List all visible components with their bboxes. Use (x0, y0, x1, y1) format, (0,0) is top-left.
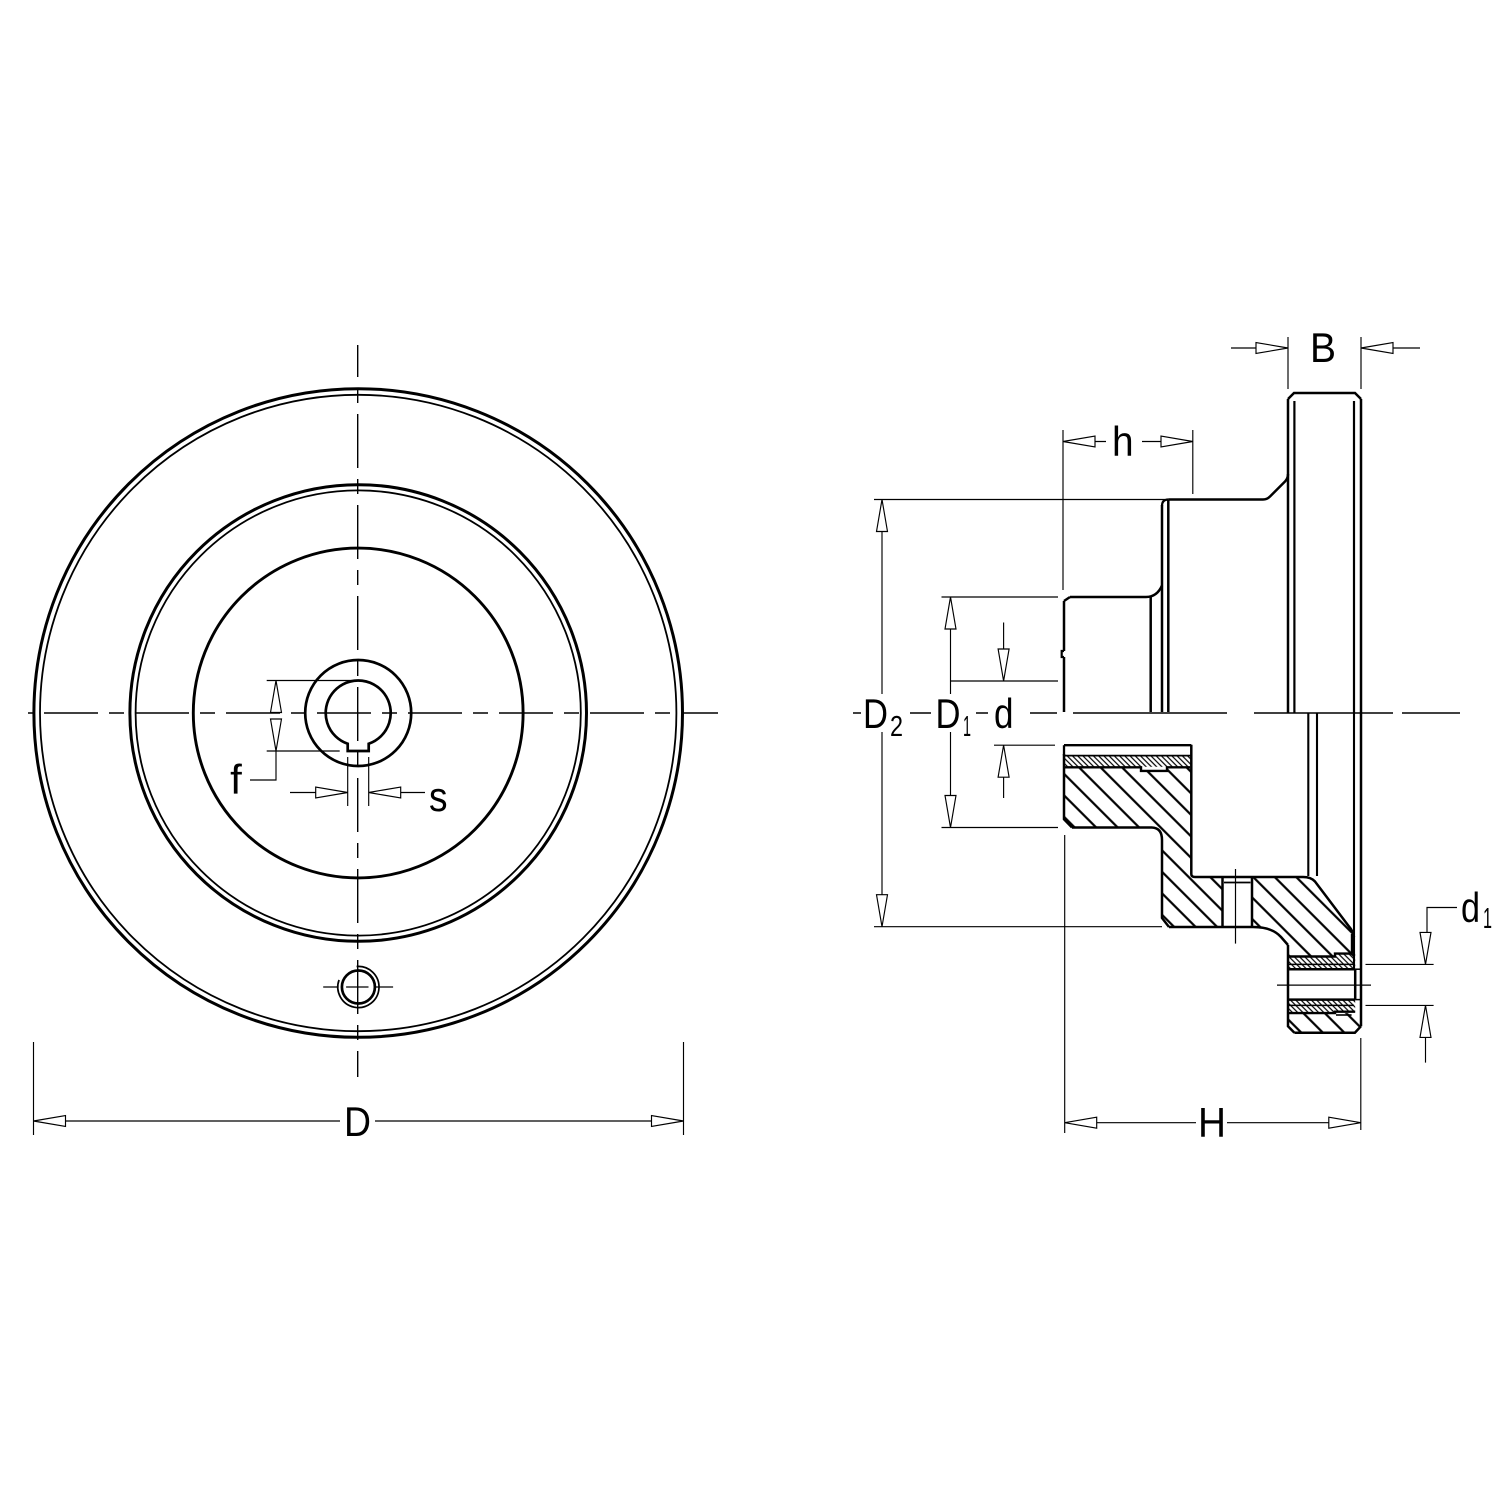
svg-text:B: B (1310, 324, 1336, 371)
svg-text:f: f (230, 756, 242, 803)
svg-text:d: d (994, 690, 1014, 737)
svg-text:D: D (344, 1098, 371, 1145)
svg-text:H: H (1198, 1099, 1226, 1146)
svg-text:h: h (1112, 418, 1134, 465)
svg-text:s: s (429, 773, 448, 820)
